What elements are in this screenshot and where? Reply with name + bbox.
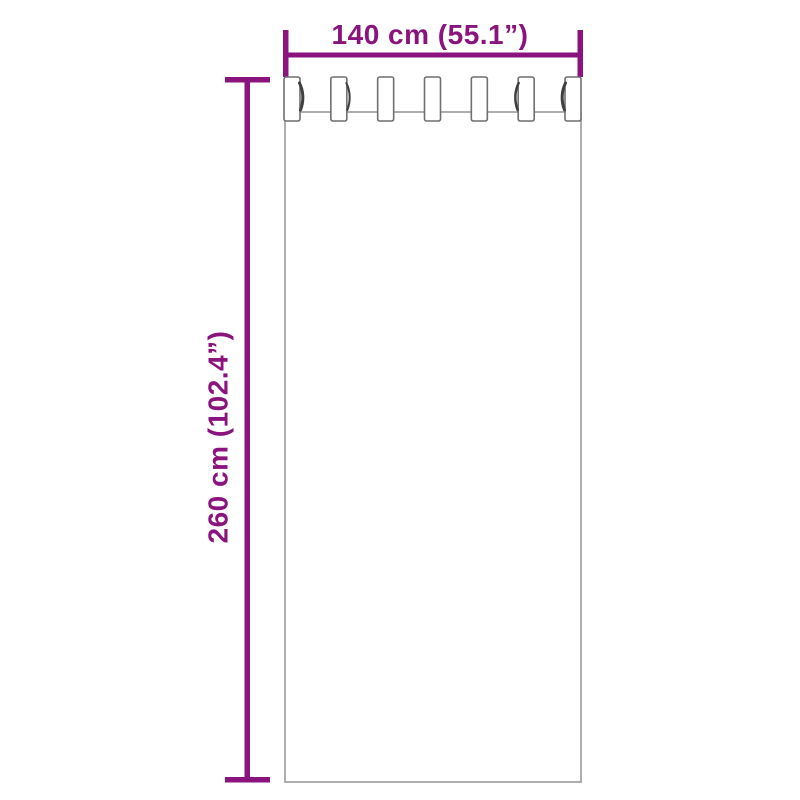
curtain-panel (285, 112, 581, 782)
height-dimension-line (245, 79, 251, 779)
height-dimension: 260 cm (102.4”) (202, 77, 270, 783)
curtain-tab (471, 77, 487, 121)
height-dimension-label: 260 cm (102.4”) (202, 331, 233, 544)
curtain-tab (331, 77, 347, 121)
curtain-tab (284, 77, 300, 121)
width-dimension-left-cap (283, 30, 289, 77)
width-dimension-label: 140 cm (55.1”) (332, 19, 529, 50)
height-dimension-bottom-cap (225, 777, 270, 783)
height-dimension-top-cap (225, 77, 270, 83)
curtain-dimension-diagram: 140 cm (55.1”) 260 cm (102.4”) (0, 0, 800, 800)
curtain-tab (378, 77, 394, 121)
width-dimension-line (285, 53, 581, 58)
width-dimension: 140 cm (55.1”) (283, 19, 583, 77)
curtain-tab (425, 77, 441, 121)
curtain-tab (565, 77, 581, 121)
width-dimension-right-cap (578, 30, 584, 77)
curtain-tab (518, 77, 534, 121)
diagram-canvas: 140 cm (55.1”) 260 cm (102.4”) (0, 0, 800, 800)
